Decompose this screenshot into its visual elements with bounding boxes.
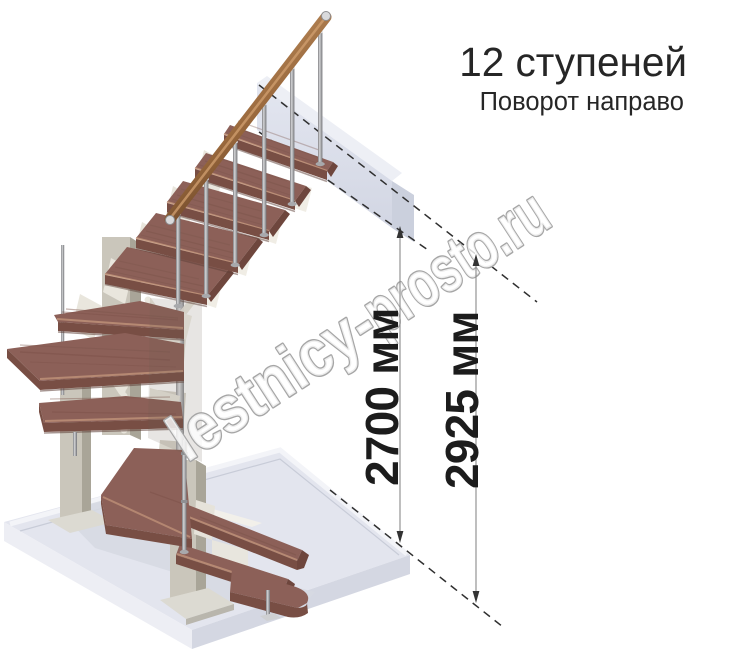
svg-text:12 ступеней: 12 ступеней <box>459 39 687 85</box>
svg-text:2925 мм: 2925 мм <box>436 311 488 489</box>
svg-text:Поворот направо: Поворот направо <box>480 88 684 116</box>
svg-text:2700 мм: 2700 мм <box>356 308 408 486</box>
